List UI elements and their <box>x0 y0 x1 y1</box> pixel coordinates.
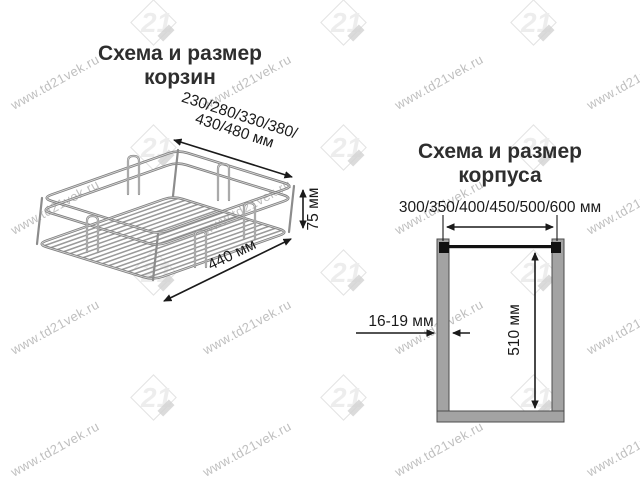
cabinet-right-panel <box>552 239 564 412</box>
cabinet-title-line2: корпуса <box>390 164 610 188</box>
cabinet-thickness-dimension-label: 16-19 мм <box>368 313 433 330</box>
cabinet-top-rail-right-cap <box>551 242 561 253</box>
basket-wire-drawing <box>37 150 294 280</box>
cabinet-title-line1: Схема и размер <box>390 140 610 164</box>
basket-height-dimension-label: 75 мм <box>305 188 322 231</box>
cabinet-section-title: Схема и размер корпуса <box>390 140 610 188</box>
basket-section-title: Схема и размер корзин <box>60 42 300 90</box>
cabinet-top-rail <box>441 245 560 248</box>
cabinet-top-rail-left-cap <box>439 242 449 253</box>
basket-width-dimension-label: 230/280/330/380/ 430/480 мм <box>174 89 300 158</box>
basket-corner-post <box>289 186 294 232</box>
cabinet-bottom-panel <box>437 411 564 422</box>
basket-mounting-loop <box>218 164 229 200</box>
cabinet-height-dimension-label: 510 мм <box>506 304 523 355</box>
basket-width-dimension-arrow <box>174 140 292 177</box>
product-schematic-canvas: www.td21vek.ruwww.td21vek.ruwww.td21vek.… <box>0 0 640 480</box>
cabinet-diagram: 300/350/400/450/500/600 мм 510 мм 16-19 … <box>356 199 601 422</box>
basket-title-line2: корзин <box>60 66 300 90</box>
basket-title-line1: Схема и размер <box>60 42 300 66</box>
cabinet-width-dimension-label: 300/350/400/450/500/600 мм <box>399 199 601 216</box>
basket-diagram: 230/280/330/380/ 430/480 мм 75 мм 440 мм <box>37 89 322 301</box>
cabinet-left-panel <box>437 239 449 412</box>
basket-corner-post <box>37 198 42 244</box>
basket-mounting-loop-highlight <box>218 164 229 200</box>
basket-corner-post <box>173 150 178 196</box>
